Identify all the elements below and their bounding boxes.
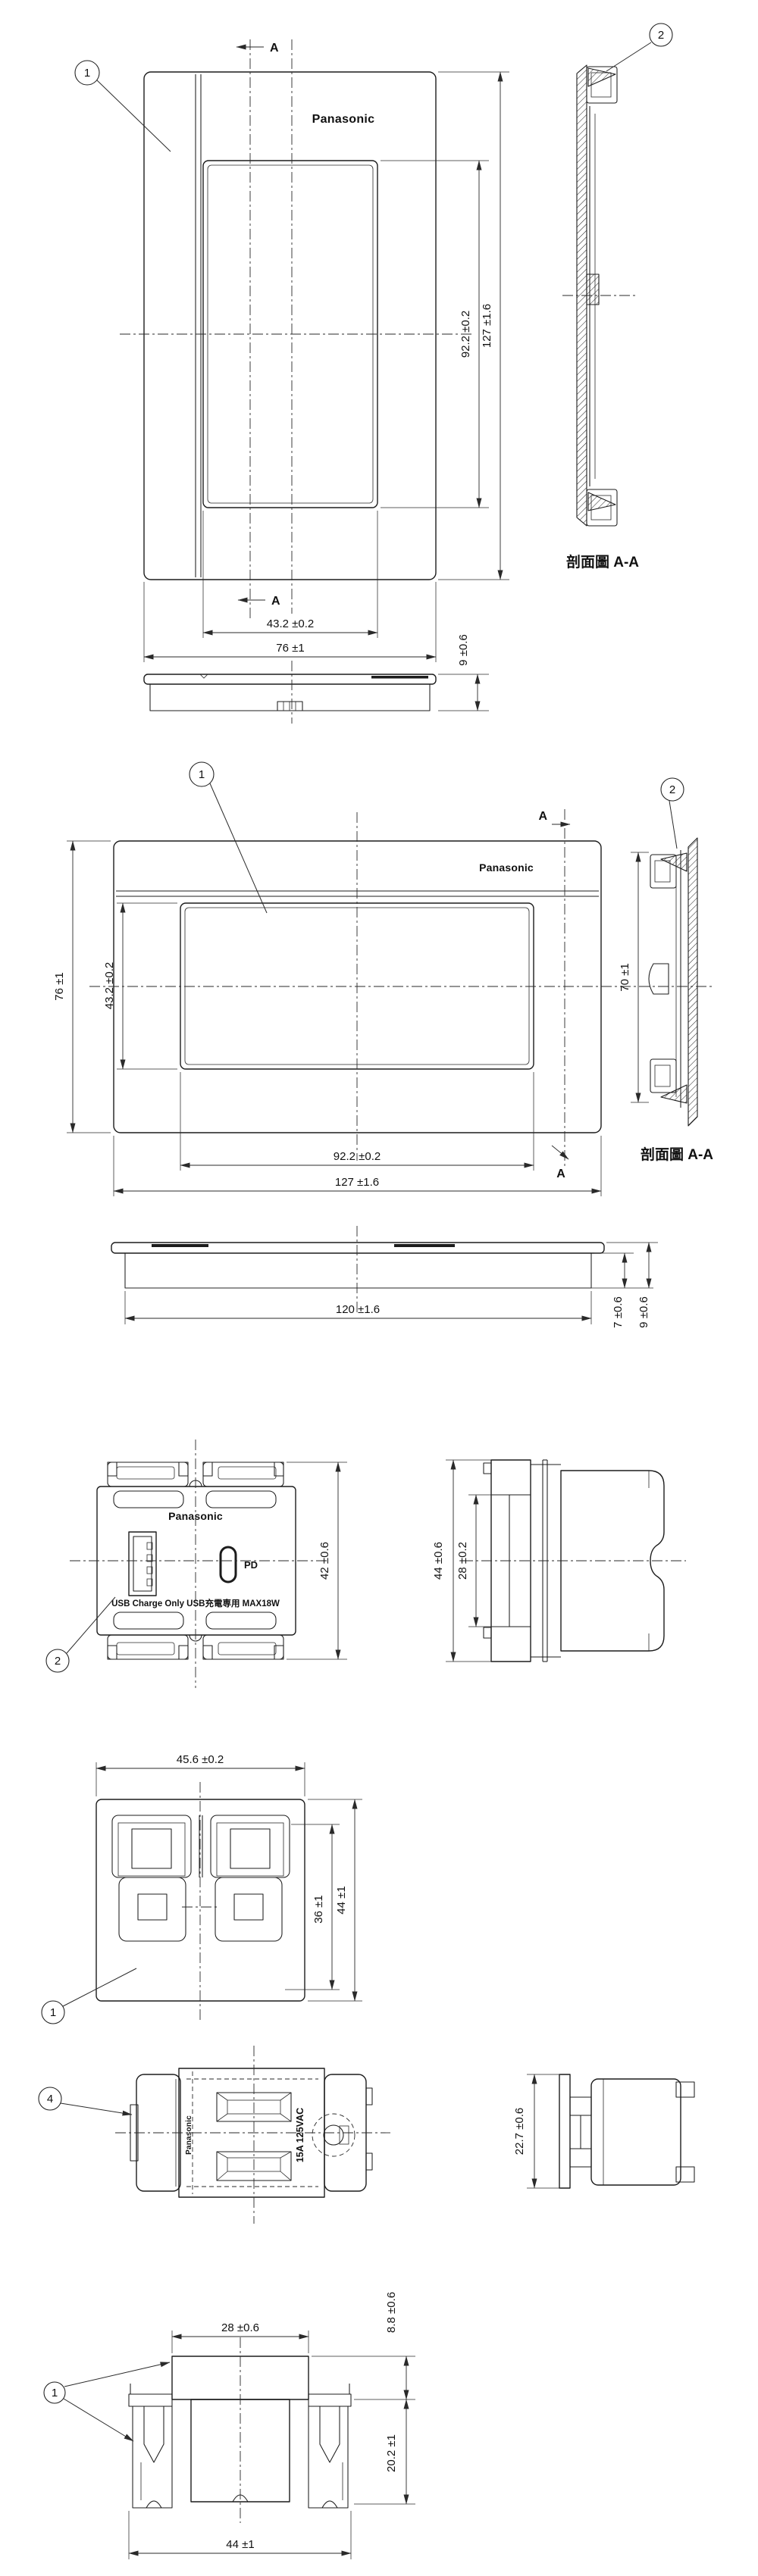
section-view-label: 剖面圖 A-A [566, 553, 639, 571]
module-rear-view: Panasonic 15A 125VAC 4 [39, 2046, 390, 2224]
plate-landscape-bottom-profile: 120 ±1.6 7 ±0.6 9 ±0.6 [111, 1226, 658, 1328]
dim-rear-side-height: 22.7 ±0.6 [513, 2108, 526, 2155]
balloon-2-number: 2 [669, 783, 675, 796]
usb-c-port [221, 1547, 236, 1582]
dimensional-drawing-canvas: A A Panasonic 1 92.2 ±0.2 127 ±1.6 43.2 … [0, 0, 758, 2576]
brand-logo: Panasonic [479, 861, 534, 874]
section-marker-a-top: A [270, 42, 279, 55]
dim-side-outer: 44 ±0.6 [432, 1542, 445, 1580]
dim-frame-inner-height: 36 ±1 [312, 1895, 325, 1923]
dim-module-height: 42 ±0.6 [318, 1542, 331, 1580]
dim-outer-thickness: 9 ±0.6 [637, 1296, 650, 1328]
brand-logo: Panasonic [312, 113, 375, 126]
dim-inner-height: 92.2 ±0.2 [459, 311, 472, 358]
dim-upper-height: 8.8 ±0.6 [385, 2292, 398, 2333]
plate-portrait-front-view: A A Panasonic 1 92.2 ±0.2 127 ±1.6 43.2 … [75, 39, 509, 662]
balloon-4-number: 4 [47, 2093, 53, 2106]
module-bottom-view: 1 28 ±0.6 8.8 ±0.6 20.2 ±1 44 ±1 [44, 2292, 415, 2559]
dim-frame-outer-height: 44 ±1 [335, 1886, 348, 1914]
dim-inner-thickness: 7 ±0.6 [612, 1296, 625, 1328]
dim-inner-width: 92.2 ±0.2 [334, 1150, 381, 1163]
brand-logo-vertical: Panasonic [185, 2115, 193, 2155]
module-rear-side-view: 22.7 ±0.6 [513, 2074, 694, 2188]
usb-module-side-view: 28 ±0.2 44 ±0.6 [432, 1460, 686, 1662]
dim-body-width: 120 ±1.6 [336, 1303, 380, 1316]
dim-bottom-width: 44 ±1 [226, 2538, 254, 2551]
balloon-1-number: 1 [84, 67, 90, 80]
plate-portrait-bottom-profile: 9 ±0.6 [144, 634, 489, 724]
dim-lower-height: 20.2 ±1 [385, 2434, 398, 2472]
plate-portrait-section-aa-view: 2 剖面圖 A-A [562, 23, 672, 571]
dim-plate-thickness: 9 ±0.6 [457, 634, 470, 666]
balloon-1-number: 1 [199, 768, 205, 781]
mounting-frame-view: 1 45.6 ±0.2 36 ±1 44 ±1 [42, 1753, 362, 2024]
usb-module-front-view: Panasonic PD USB Charge Only USB充電専用 MAX… [46, 1440, 347, 1688]
dim-section-height: 70 ±1 [619, 963, 631, 991]
dim-top-width: 28 ±0.6 [221, 2321, 259, 2334]
plate-landscape-section-aa-view: 70 ±1 2 剖面圖 A-A [619, 778, 713, 1163]
dim-inner-width: 43.2 ±0.2 [267, 617, 314, 630]
balloon-2-number: 2 [55, 1655, 61, 1668]
dim-outer-height: 127 ±1.6 [481, 304, 493, 348]
dim-outer-width: 76 ±1 [276, 642, 304, 655]
plate-landscape-front-view: Panasonic A A 1 43.2 ±0.2 76 ±1 92.2 ±0.… [53, 762, 713, 1196]
section-marker-a-top: A [538, 810, 547, 823]
section-marker-a-bottom: A [556, 1168, 565, 1180]
dim-outer-height: 76 ±1 [53, 972, 66, 1000]
rating-label: 15A 125VAC [295, 2108, 305, 2162]
balloon-1-number: 1 [52, 2387, 58, 2399]
dim-inner-height: 43.2 ±0.2 [103, 962, 116, 1009]
dim-side-inner: 28 ±0.2 [456, 1542, 469, 1580]
balloon-2-number: 2 [658, 29, 664, 42]
dim-frame-width: 45.6 ±0.2 [177, 1753, 224, 1766]
section-marker-a-bottom: A [271, 595, 280, 608]
balloon-1-number: 1 [50, 2006, 56, 2019]
technical-drawing-page: A A Panasonic 1 92.2 ±0.2 127 ±1.6 43.2 … [0, 0, 758, 2576]
section-view-label: 剖面圖 A-A [641, 1146, 713, 1163]
dim-outer-width: 127 ±1.6 [335, 1176, 379, 1189]
